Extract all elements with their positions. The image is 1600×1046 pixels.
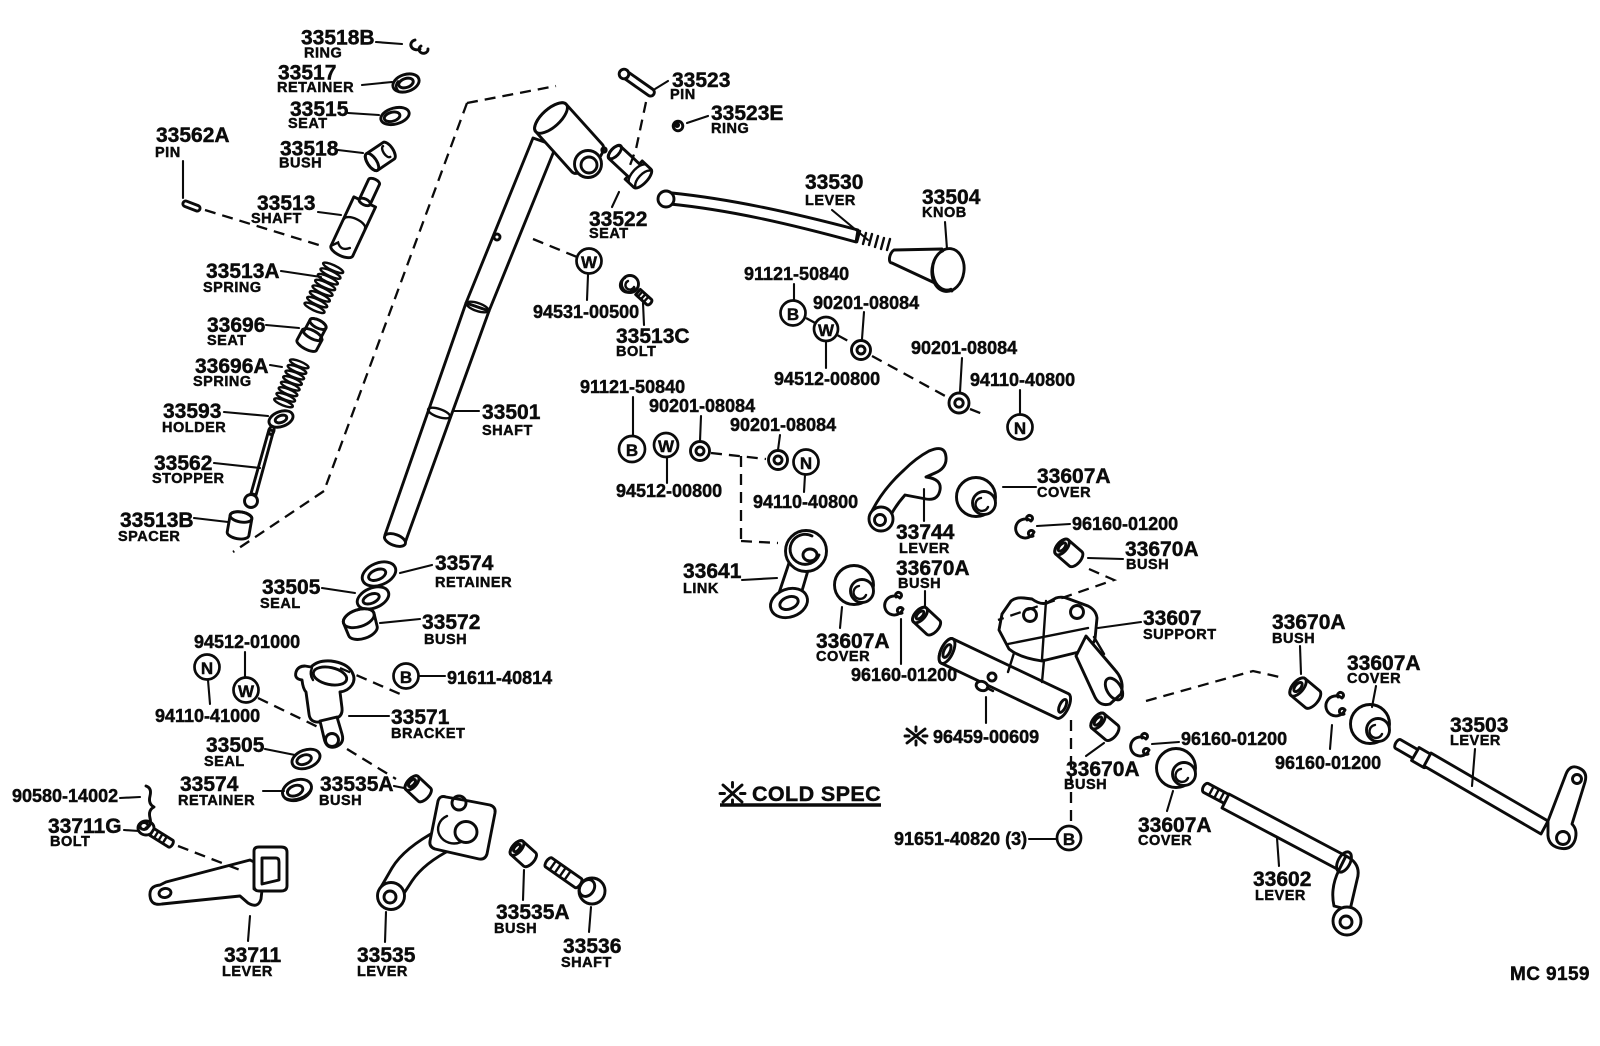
- svg-text:LEVER: LEVER: [1255, 888, 1306, 904]
- svg-text:RING: RING: [304, 46, 342, 62]
- svg-text:33572: 33572: [422, 611, 480, 634]
- svg-text:W: W: [581, 253, 598, 272]
- svg-text:LEVER: LEVER: [222, 964, 273, 980]
- svg-text:94512-00800: 94512-00800: [774, 369, 880, 389]
- svg-text:B: B: [1063, 830, 1075, 849]
- svg-text:B: B: [400, 668, 412, 687]
- svg-text:SPRING: SPRING: [203, 280, 262, 296]
- svg-text:W: W: [238, 682, 255, 701]
- svg-text:33501: 33501: [482, 401, 541, 424]
- svg-text:94110-40800: 94110-40800: [753, 492, 858, 512]
- svg-text:SHAFT: SHAFT: [561, 955, 612, 971]
- svg-text:96160-01200: 96160-01200: [1072, 514, 1178, 534]
- svg-text:N: N: [201, 659, 213, 678]
- svg-text:W: W: [818, 321, 835, 340]
- svg-text:N: N: [800, 454, 812, 473]
- svg-text:96459-00609: 96459-00609: [933, 727, 1039, 747]
- svg-text:BUSH: BUSH: [1126, 557, 1169, 573]
- svg-text:LINK: LINK: [683, 581, 719, 597]
- svg-text:96160-01200: 96160-01200: [1181, 729, 1287, 749]
- svg-text:COVER: COVER: [1037, 485, 1091, 501]
- svg-text:94110-41000: 94110-41000: [155, 706, 260, 726]
- svg-text:33530: 33530: [805, 171, 863, 194]
- svg-text:RETAINER: RETAINER: [277, 80, 354, 96]
- svg-text:MC 9159: MC 9159: [1510, 964, 1590, 985]
- svg-text:LEVER: LEVER: [805, 193, 856, 209]
- svg-text:91121-50840: 91121-50840: [744, 264, 849, 284]
- svg-text:RING: RING: [711, 121, 749, 137]
- svg-text:PIN: PIN: [670, 87, 696, 103]
- svg-text:33562A: 33562A: [156, 124, 230, 147]
- svg-text:90580-14002: 90580-14002: [12, 786, 118, 806]
- svg-text:B: B: [626, 441, 638, 460]
- svg-text:SEAT: SEAT: [589, 226, 629, 242]
- svg-text:LEVER: LEVER: [357, 964, 408, 980]
- svg-text:BUSH: BUSH: [1064, 777, 1107, 793]
- svg-text:COLD SPEC: COLD SPEC: [752, 782, 881, 806]
- svg-text:BUSH: BUSH: [279, 156, 322, 172]
- svg-text:BUSH: BUSH: [898, 576, 941, 592]
- svg-text:COVER: COVER: [1138, 833, 1192, 849]
- svg-text:94512-01000: 94512-01000: [194, 632, 300, 652]
- svg-text:90201-08084: 90201-08084: [730, 415, 836, 435]
- svg-text:BUSH: BUSH: [319, 793, 362, 809]
- svg-text:KNOB: KNOB: [922, 205, 967, 221]
- svg-text:COVER: COVER: [816, 649, 870, 665]
- svg-text:90201-08084: 90201-08084: [911, 338, 1017, 358]
- svg-text:90201-08084: 90201-08084: [649, 396, 755, 416]
- svg-text:BRACKET: BRACKET: [391, 726, 465, 742]
- svg-text:SPRING: SPRING: [193, 374, 252, 390]
- svg-text:SEAT: SEAT: [207, 333, 247, 349]
- svg-text:W: W: [658, 437, 675, 456]
- svg-text:91121-50840: 91121-50840: [580, 377, 685, 397]
- svg-text:33641: 33641: [683, 560, 742, 583]
- svg-text:BOLT: BOLT: [616, 344, 656, 360]
- svg-text:B: B: [787, 305, 799, 324]
- svg-text:BOLT: BOLT: [50, 834, 90, 850]
- svg-text:PIN: PIN: [155, 145, 181, 161]
- svg-text:LEVER: LEVER: [899, 541, 950, 557]
- svg-text:SEAT: SEAT: [288, 116, 328, 132]
- svg-text:33574: 33574: [435, 552, 494, 575]
- svg-text:91651-40820 (3): 91651-40820 (3): [894, 829, 1027, 849]
- svg-text:91611-40814: 91611-40814: [447, 668, 552, 688]
- svg-text:COVER: COVER: [1347, 671, 1401, 687]
- svg-text:94110-40800: 94110-40800: [970, 370, 1075, 390]
- svg-text:BUSH: BUSH: [494, 921, 537, 937]
- svg-text:N: N: [1014, 419, 1026, 438]
- svg-text:RETAINER: RETAINER: [435, 575, 512, 591]
- svg-text:RETAINER: RETAINER: [178, 793, 255, 809]
- svg-text:94531-00500: 94531-00500: [533, 302, 639, 322]
- svg-text:90201-08084: 90201-08084: [813, 293, 919, 313]
- svg-text:SPACER: SPACER: [118, 529, 180, 545]
- svg-text:LEVER: LEVER: [1450, 733, 1501, 749]
- svg-text:96160-01200: 96160-01200: [1275, 753, 1381, 773]
- svg-text:STOPPER: STOPPER: [152, 471, 225, 487]
- svg-text:BUSH: BUSH: [424, 632, 467, 648]
- svg-text:96160-01200: 96160-01200: [851, 665, 957, 685]
- svg-text:SUPPORT: SUPPORT: [1143, 627, 1217, 643]
- svg-text:SHAFT: SHAFT: [251, 211, 302, 227]
- svg-text:SHAFT: SHAFT: [482, 423, 533, 439]
- svg-text:SEAL: SEAL: [204, 754, 245, 770]
- svg-text:HOLDER: HOLDER: [162, 420, 226, 436]
- svg-text:SEAL: SEAL: [260, 596, 301, 612]
- svg-text:BUSH: BUSH: [1272, 631, 1315, 647]
- svg-text:94512-00800: 94512-00800: [616, 481, 722, 501]
